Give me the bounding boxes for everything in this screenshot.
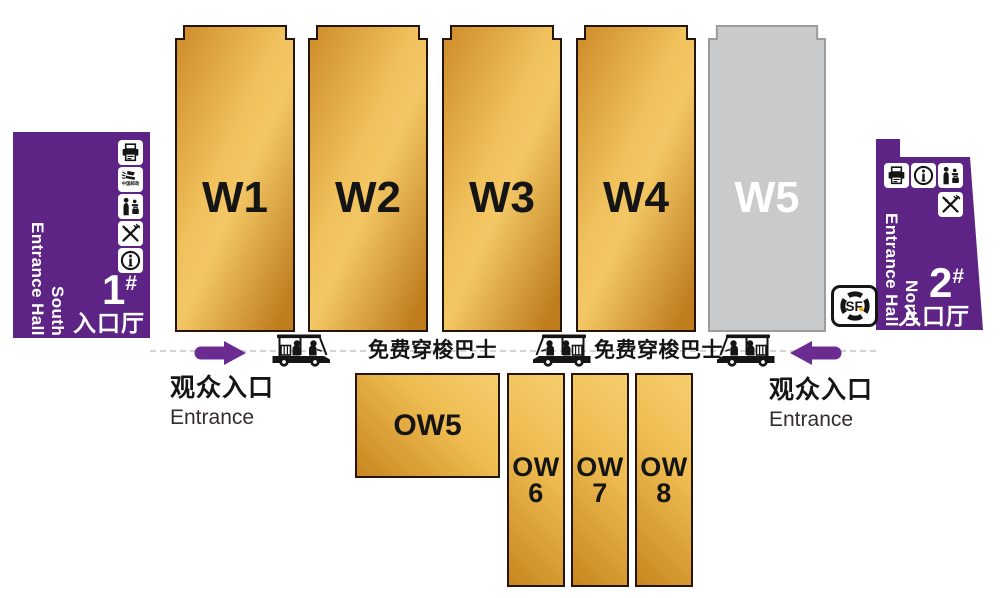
shuttle-bus-icon [715, 333, 777, 367]
hall-w5-label: W5 [735, 174, 800, 222]
north-service-icons-row1 [884, 163, 963, 188]
china-post-icon: 中国邮政 [118, 167, 143, 192]
sf-logo-text: SF [845, 299, 862, 314]
south-hall-number-mark: # [125, 272, 137, 295]
south-hall-number: 1 [102, 266, 125, 313]
hall-w1-label: W1 [202, 173, 268, 222]
hall-ow8-label-line1: OW [640, 454, 688, 480]
visitor-entrance-en: Entrance [170, 406, 274, 430]
south-service-icons: 中国邮政 [118, 140, 143, 273]
hall-ow5-label: OW5 [393, 409, 461, 443]
visitor-entrance-cn: 观众入口 [170, 368, 274, 404]
south-hall-name: South Entrance Hall [27, 212, 67, 336]
printer-icon [884, 163, 909, 188]
exhibition-floor-map: W1 W2 W3 W4 [0, 0, 1000, 598]
hall-ow8: OW 8 [635, 373, 693, 587]
hall-ow5: OW5 [355, 373, 500, 478]
hall-ow8-label-line2: 8 [656, 480, 672, 506]
hall-w2-label: W2 [335, 173, 401, 222]
hall-ow7: OW 7 [571, 373, 629, 587]
visitor-entrance-en: Entrance [769, 408, 873, 432]
north-hall-label-cn: 入口厅 [898, 305, 970, 328]
south-hall-number-group: 1# 入口厅 [73, 269, 145, 335]
hall-ow6-label-line2: 6 [528, 480, 544, 506]
reception-icon [938, 163, 963, 188]
hall-w5: W5 [708, 25, 826, 332]
hall-w4-label: W4 [603, 173, 670, 222]
free-shuttle-bus-label: 免费穿梭巴士 [368, 339, 497, 363]
sf-express-logo: SF [831, 285, 878, 327]
visitor-entrance-cn: 观众入口 [769, 370, 873, 406]
north-hall-number-mark: # [952, 265, 964, 288]
entrance-arrow-icon [192, 340, 248, 366]
hall-ow6-label-line1: OW [512, 454, 560, 480]
south-hall-name-bottom: Entrance Hall [27, 212, 47, 336]
south-entrance-hall-block: 中国邮政 South Entrance Hall 1# 入口厅 [13, 132, 150, 338]
dining-icon [118, 221, 143, 246]
north-hall-number: 2 [929, 259, 952, 306]
entrance-arrow-icon [788, 340, 844, 366]
south-hall-name-top: South [47, 212, 67, 336]
hall-ow7-label-line1: OW [576, 454, 624, 480]
hall-ow7-label-line2: 7 [592, 480, 608, 506]
north-entrance-hall-block: North Entrance Hall 2# 入口厅 [876, 139, 983, 330]
hall-w1: W1 [175, 25, 295, 332]
shuttle-bus-icon [270, 333, 332, 367]
china-post-text: 中国邮政 [122, 180, 140, 187]
visitor-entrance-label-right: 观众入口 Entrance [769, 370, 873, 432]
visitor-entrance-label-left: 观众入口 Entrance [170, 368, 274, 430]
north-hall-number-group: 2# 入口厅 [898, 262, 970, 328]
hall-w3-label: W3 [469, 173, 535, 222]
hall-w4: W4 [576, 25, 696, 332]
dining-icon [938, 192, 963, 217]
south-hall-label-cn: 入口厅 [73, 312, 145, 335]
hall-ow6: OW 6 [507, 373, 565, 587]
free-shuttle-bus-label: 免费穿梭巴士 [594, 339, 723, 363]
printer-icon [118, 140, 143, 165]
hall-w3: W3 [442, 25, 562, 332]
hall-w2: W2 [308, 25, 428, 332]
shuttle-bus-icon [531, 333, 593, 367]
info-icon [911, 163, 936, 188]
reception-icon [118, 194, 143, 219]
